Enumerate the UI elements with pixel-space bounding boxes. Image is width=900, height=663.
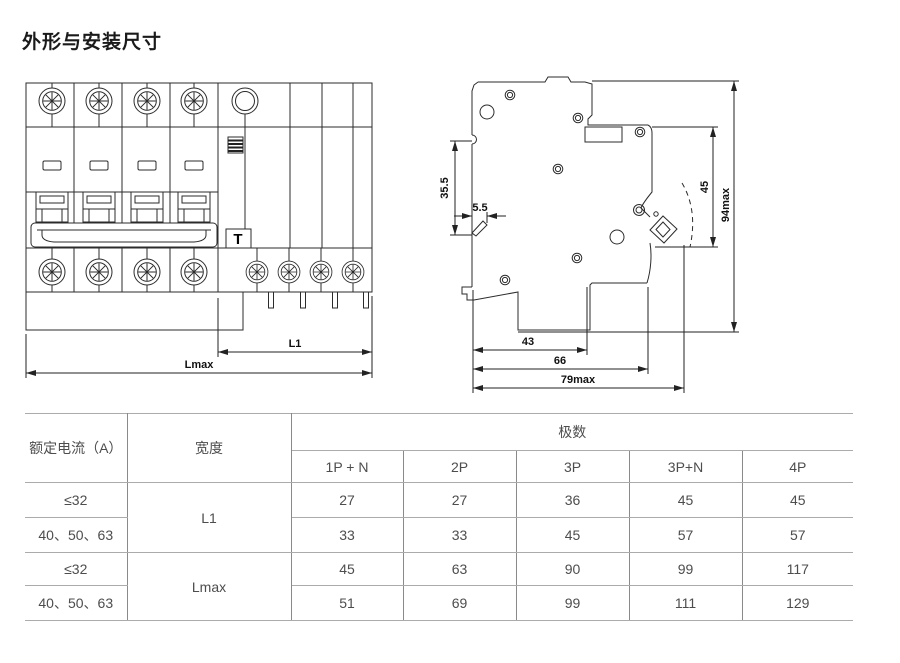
rivet-icon xyxy=(500,90,645,285)
screw-terminal-icon xyxy=(134,259,160,285)
dimension-label-66: 66 xyxy=(554,355,566,367)
current-column-header: 额定电流（A） xyxy=(25,414,127,483)
toggle-handle xyxy=(36,192,68,222)
toggle-handle xyxy=(83,192,115,222)
connector-pin xyxy=(269,292,274,308)
width-column-header: 宽度 xyxy=(127,414,291,483)
table-cell: 117 xyxy=(742,553,853,586)
label-window xyxy=(585,127,622,142)
toggle-handle xyxy=(178,192,210,222)
dimension-label-l1: L1 xyxy=(289,338,302,350)
dimension-label-lmax: Lmax xyxy=(185,359,215,371)
dimension-lmax: Lmax xyxy=(26,334,372,378)
table-cell: 51 xyxy=(291,586,403,621)
pole-column-1pn: 1P + N xyxy=(291,451,403,483)
table-cell: 99 xyxy=(629,553,742,586)
table-cell: 90 xyxy=(516,553,629,586)
pole-column-2p: 2P xyxy=(403,451,516,483)
table-cell: 129 xyxy=(742,586,853,621)
connector-pin xyxy=(301,292,306,308)
dimension-35-5: 35.5 xyxy=(440,141,472,235)
poles-header: 极数 xyxy=(291,414,853,451)
case-hole xyxy=(480,105,624,244)
screw-terminal-icon xyxy=(310,261,332,283)
dimension-label-94max: 94max xyxy=(720,187,732,222)
table-cell: 45 xyxy=(742,483,853,518)
width-cell-l1: L1 xyxy=(127,483,291,553)
table-cell: 63 xyxy=(403,553,516,586)
screw-terminal-icon xyxy=(181,88,207,114)
dimension-label-35-5: 35.5 xyxy=(440,177,451,198)
table-cell: 111 xyxy=(629,586,742,621)
table-cell: 69 xyxy=(403,586,516,621)
screw-terminal-icon xyxy=(39,88,65,114)
toggle-handle xyxy=(131,192,163,222)
screw-terminal-icon xyxy=(278,261,300,283)
dimensions-table: 额定电流（A） 宽度 极数 1P + N 2P 3P 3P+N 4P ≤32 L… xyxy=(25,413,853,621)
width-cell-lmax: Lmax xyxy=(127,553,291,621)
table-cell: 99 xyxy=(516,586,629,621)
dimension-label-79max: 79max xyxy=(561,374,596,386)
screw-terminal-icon xyxy=(181,259,207,285)
table-cell: 57 xyxy=(629,518,742,553)
side-profile-body xyxy=(462,77,693,330)
connector-pin xyxy=(364,292,369,308)
table-cell: 45 xyxy=(629,483,742,518)
pole-column-3p: 3P xyxy=(516,451,629,483)
screw-terminal-icon xyxy=(134,88,160,114)
current-cell: ≤32 xyxy=(25,483,127,518)
screw-terminal-icon xyxy=(86,259,112,285)
screw-terminal-icon xyxy=(342,261,364,283)
table-cell: 57 xyxy=(742,518,853,553)
dimension-5-5: 5.5 xyxy=(454,202,506,223)
dimension-l1: L1 xyxy=(218,296,372,378)
table-cell: 45 xyxy=(291,553,403,586)
table-cell: 27 xyxy=(403,483,516,518)
table-cell: 33 xyxy=(291,518,403,553)
dimension-label-5-5: 5.5 xyxy=(472,202,487,214)
dimension-label-43: 43 xyxy=(522,336,534,348)
current-cell: ≤32 xyxy=(25,553,127,586)
table-cell: 27 xyxy=(291,483,403,518)
side-view-diagram: 35.5 5.5 45 94max 43 66 xyxy=(440,65,745,400)
screw-terminal-icon xyxy=(246,261,268,283)
dimension-94max: 94max xyxy=(518,81,739,332)
table-cell: 45 xyxy=(516,518,629,553)
current-cell: 40、50、63 xyxy=(25,518,127,553)
dimension-label-45: 45 xyxy=(699,181,711,193)
front-view-diagram: T L1 Lmax xyxy=(10,70,410,385)
rcd-module: T xyxy=(226,83,369,308)
current-cell: 40、50、63 xyxy=(25,586,127,621)
page-title: 外形与安装尺寸 xyxy=(22,27,162,54)
pole-column-3pn: 3P+N xyxy=(629,451,742,483)
screw-terminal-icon xyxy=(39,259,65,285)
connector-pin xyxy=(333,292,338,308)
indicator-slider xyxy=(228,137,243,153)
datasheet-page: 外形与安装尺寸 xyxy=(0,0,900,663)
table-cell: 36 xyxy=(516,483,629,518)
test-button-label: T xyxy=(233,231,242,248)
side-toggle-handle xyxy=(650,183,693,247)
test-button: T xyxy=(226,229,251,248)
handle-tie-bar xyxy=(31,223,217,247)
table-cell: 33 xyxy=(403,518,516,553)
pole-column-4p: 4P xyxy=(742,451,853,483)
breaker-body xyxy=(26,83,372,330)
dimension-79max: 79max xyxy=(473,245,684,393)
screw-terminal-icon xyxy=(86,88,112,114)
